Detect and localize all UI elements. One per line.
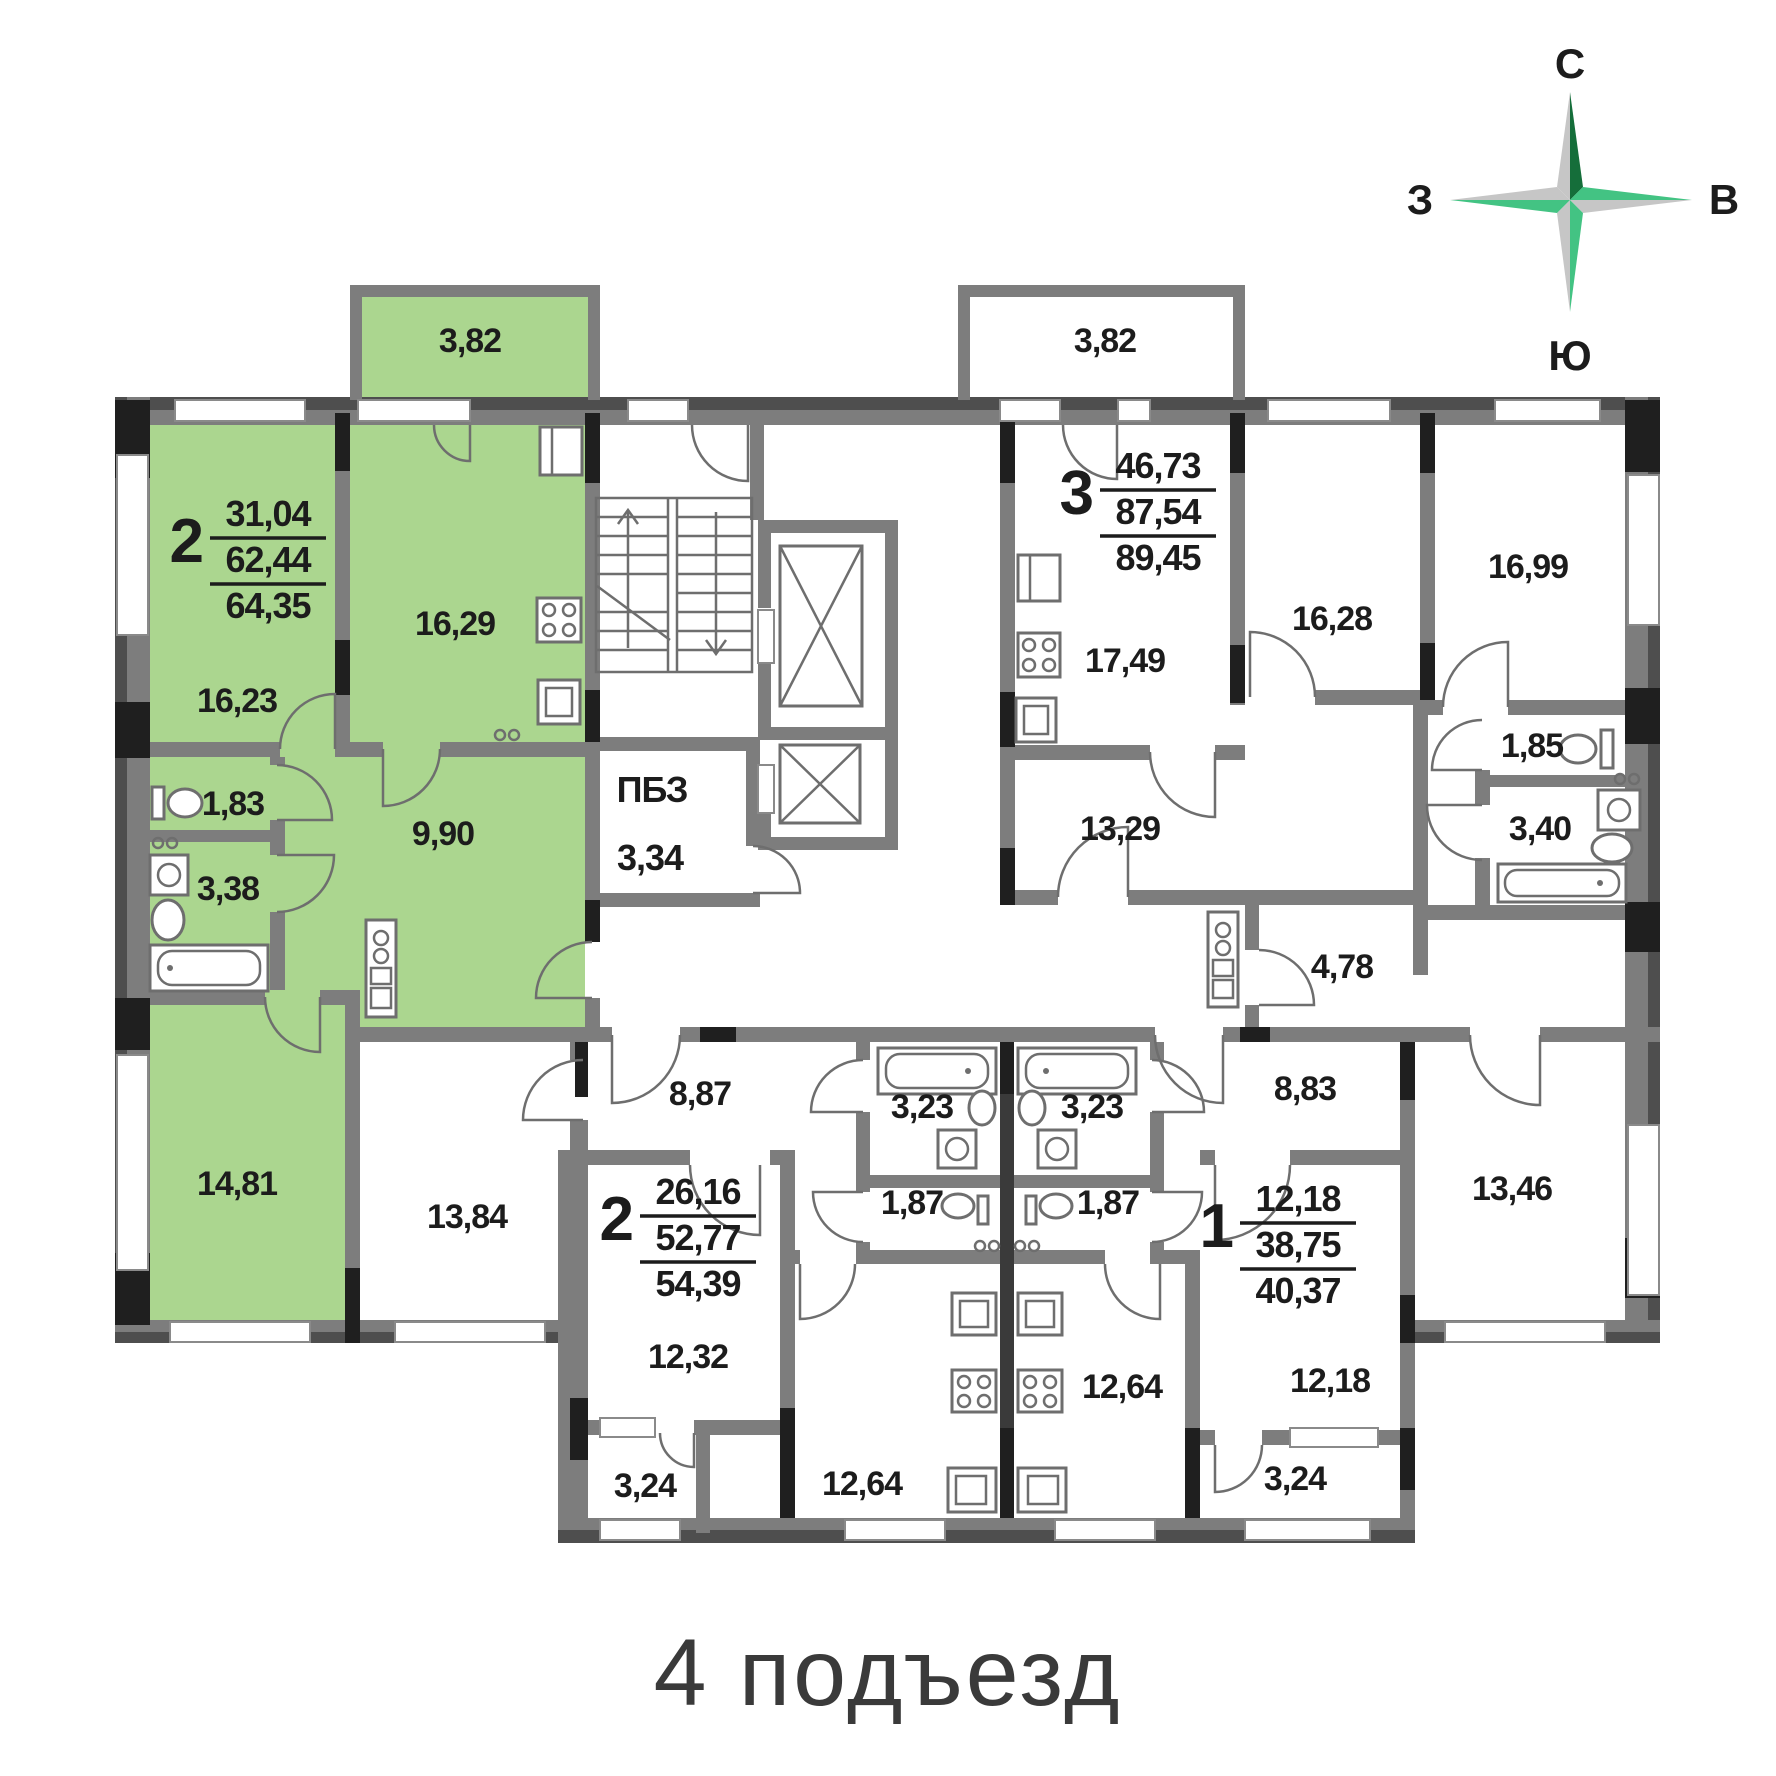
tech-room-name: ПБЗ xyxy=(617,769,688,810)
room-label: 3,23 xyxy=(1061,1088,1123,1126)
compass-south-label: Ю xyxy=(1548,332,1591,379)
floorplan-svg: 3,82 16,23 16,29 1,83 3,38 9,90 14,81 3,… xyxy=(0,0,1776,1776)
elevator-icons xyxy=(780,546,862,823)
room-label: 17,49 xyxy=(1085,642,1165,680)
apartment-area: 87,54 xyxy=(1115,491,1201,532)
apartment-label-2b[interactable]: 2 26,16 52,77 54,39 xyxy=(600,1171,756,1304)
toilet-icon xyxy=(1560,730,1613,768)
apartment-rooms: 1 xyxy=(1200,1192,1233,1261)
room-label: 1,87 xyxy=(881,1184,943,1222)
apartment-area: 38,75 xyxy=(1255,1224,1341,1265)
room-label: 3,82 xyxy=(439,322,501,360)
room-label: 13,29 xyxy=(1080,810,1160,848)
washing-machine-icon xyxy=(1598,790,1640,830)
room-label: 13,84 xyxy=(427,1198,508,1236)
apartment-rooms: 3 xyxy=(1060,459,1093,528)
washbasin-icon xyxy=(152,900,184,940)
washing-machine-icon xyxy=(938,1130,976,1168)
room-label: 16,29 xyxy=(415,605,495,643)
riser-panel-icon xyxy=(1208,912,1238,1007)
washbasin-icon xyxy=(1019,1091,1045,1125)
room-label: 14,81 xyxy=(197,1165,277,1203)
washbasin-icon xyxy=(969,1091,995,1125)
stove-icon xyxy=(1018,633,1060,677)
room-label: 12,32 xyxy=(648,1338,728,1376)
apartment-total-area: 40,37 xyxy=(1255,1270,1340,1311)
room-label: 3,23 xyxy=(891,1088,953,1126)
sink-icon xyxy=(538,680,580,724)
room-label: 12,64 xyxy=(822,1465,903,1503)
room-label: 1,85 xyxy=(1501,727,1563,765)
bathtub-icon xyxy=(1498,864,1626,902)
apartment-rooms: 2 xyxy=(170,507,202,576)
room-label: 16,99 xyxy=(1488,548,1568,586)
room-label: 1,83 xyxy=(202,785,264,823)
room-label: 9,90 xyxy=(412,815,474,853)
riser-panel-icon xyxy=(366,920,396,1017)
room-label: 16,28 xyxy=(1292,600,1372,638)
room-label: 16,23 xyxy=(197,682,277,720)
room-label: 3,38 xyxy=(197,870,259,908)
apartment-area: 52,77 xyxy=(655,1217,740,1258)
toilet-icon xyxy=(1026,1194,1072,1224)
stove-icon xyxy=(1018,1370,1062,1412)
apartment-label-1[interactable]: 1 12,18 38,75 40,37 xyxy=(1200,1178,1356,1311)
sink-icon xyxy=(1016,698,1056,742)
compass-north-label: С xyxy=(1555,40,1585,87)
apartment-rooms: 2 xyxy=(600,1185,632,1254)
appliance-icon xyxy=(952,1293,996,1335)
stairs-icon xyxy=(596,498,752,672)
apartment-total-area: 54,39 xyxy=(655,1263,740,1304)
room-label: 12,18 xyxy=(1290,1362,1370,1400)
apartment-label-3[interactable]: 3 46,73 87,54 89,45 xyxy=(1060,445,1216,578)
toilet-icon xyxy=(942,1194,988,1224)
apartment-area: 62,44 xyxy=(225,539,311,580)
apartment-living-area: 12,18 xyxy=(1255,1178,1340,1219)
room-label: 3,24 xyxy=(1264,1460,1327,1498)
tech-room-area: 3,34 xyxy=(617,837,684,878)
fridge-icon xyxy=(540,427,582,475)
fridge-icon xyxy=(1018,555,1060,601)
apartment-total-area: 89,45 xyxy=(1115,537,1201,578)
room-label: 13,46 xyxy=(1472,1170,1552,1208)
stove-icon xyxy=(952,1370,996,1412)
page-title: 4 подъезд xyxy=(654,1620,1123,1726)
room-label: 3,82 xyxy=(1074,322,1136,360)
room-label: 8,87 xyxy=(669,1075,731,1113)
apartment-living-area: 46,73 xyxy=(1115,445,1200,486)
apartment-total-area: 64,35 xyxy=(225,585,311,626)
room-label: 1,87 xyxy=(1077,1184,1139,1222)
compass-west-label: З xyxy=(1407,176,1433,223)
floorplan-page: 3,82 16,23 16,29 1,83 3,38 9,90 14,81 3,… xyxy=(0,0,1776,1776)
compass-east-label: В xyxy=(1709,176,1739,223)
room-label: 12,64 xyxy=(1082,1368,1163,1406)
bathtub-icon xyxy=(150,945,268,991)
room-label: 3,40 xyxy=(1509,810,1571,848)
toilet-icon xyxy=(152,787,202,819)
apartment-living-area: 26,16 xyxy=(655,1171,740,1212)
room-label: 4,78 xyxy=(1311,948,1373,986)
room-label: 8,83 xyxy=(1274,1070,1336,1108)
washbasin-icon xyxy=(1592,834,1632,862)
compass-rose-icon: С В Ю З xyxy=(1407,40,1739,379)
apartment-living-area: 31,04 xyxy=(225,493,311,534)
appliance-icon xyxy=(1018,1293,1062,1335)
washing-machine-icon xyxy=(150,855,188,895)
washing-machine-icon xyxy=(1038,1130,1076,1168)
stove-icon xyxy=(537,598,581,642)
room-label: 3,24 xyxy=(614,1467,677,1505)
